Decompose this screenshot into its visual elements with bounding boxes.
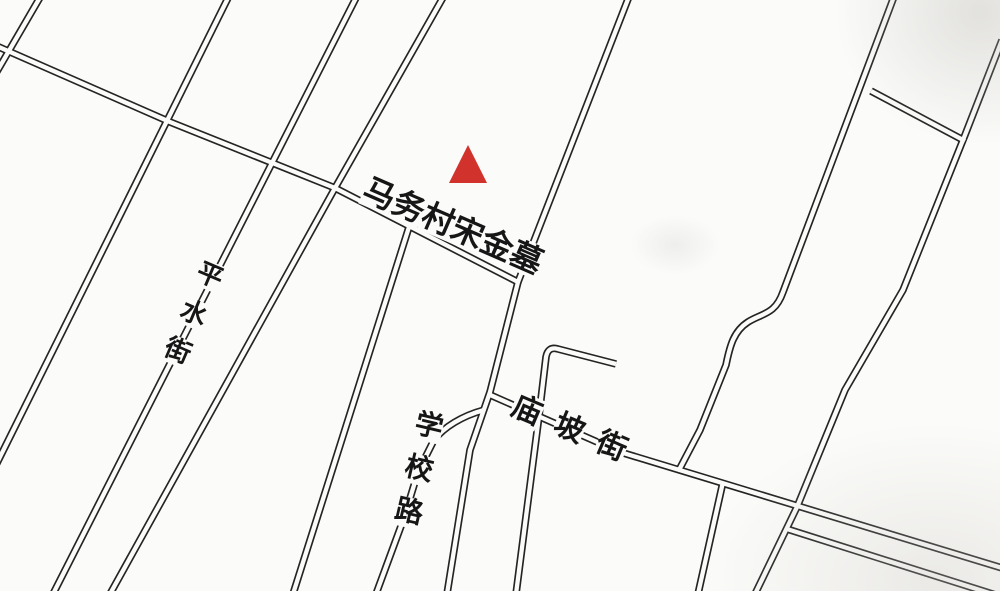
road-steep-topleft (0, 0, 42, 80)
road-right-edge-street (755, 40, 1000, 591)
road-steep-second (0, 0, 230, 473)
tomb-marker-triangle (449, 145, 487, 183)
hand-drawn-street-map: 马务村宋金墓 平水街 学校路 庙坡街 (0, 0, 1000, 591)
road-network (0, 0, 1000, 591)
